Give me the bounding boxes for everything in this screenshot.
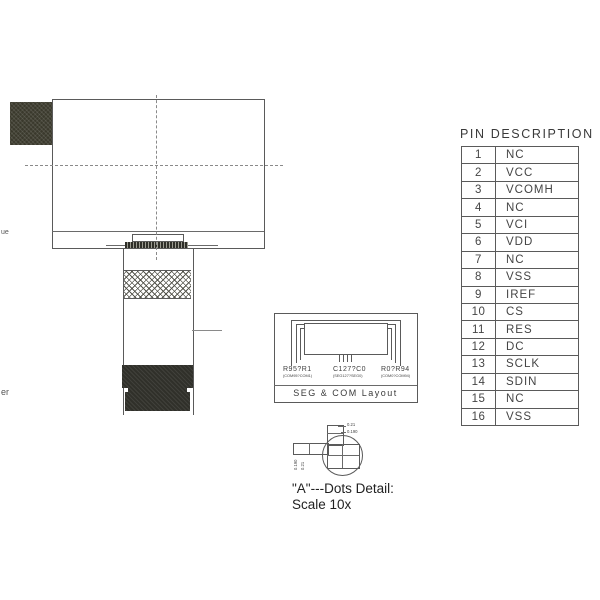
seg-trace-tick <box>339 354 340 362</box>
pin-table-title: PIN DESCRIPTION <box>460 127 594 141</box>
seg-label-right-sub: (COM0?COM94) <box>381 374 410 378</box>
dim-leader-line <box>341 432 346 433</box>
pin-name: VSS <box>496 411 578 423</box>
pin-name: NC <box>496 202 578 214</box>
bottom-slot <box>132 234 184 242</box>
dim-leader-line <box>338 426 346 427</box>
pad-extension-line-right <box>187 245 218 246</box>
vertical-centerline <box>156 95 157 260</box>
pin-number: 6 <box>462 234 496 250</box>
pin-table-row: 6VDD <box>462 234 578 251</box>
pin-number: 13 <box>462 356 496 372</box>
dots-top-column-divider <box>327 433 343 434</box>
pin-table-row: 9IREF <box>462 287 578 304</box>
dots-detail-caption-line1: "A"---Dots Detail: <box>292 481 394 497</box>
left-label-fragment-top: ue <box>1 229 9 236</box>
pin-table-row: 3VCOMH <box>462 182 578 199</box>
pin-number: 8 <box>462 269 496 285</box>
pin-table-row: 4NC <box>462 199 578 216</box>
pin-number: 9 <box>462 287 496 303</box>
seg-label-right: R0?R94 <box>381 366 410 373</box>
pin-name: NC <box>496 393 578 405</box>
pin-name: SCLK <box>496 358 578 370</box>
pin-table-row: 14SDIN <box>462 374 578 391</box>
pin-number: 10 <box>462 304 496 320</box>
flex-end-connector <box>122 365 193 411</box>
pin-number: 16 <box>462 409 496 425</box>
datasheet-drawing-page: ue er R95?R1 (COM95?COM1) C127?C0 (SEG12… <box>0 0 600 600</box>
pin-name: IREF <box>496 289 578 301</box>
seg-label-center: C127?C0 <box>333 366 366 373</box>
pin-number: 12 <box>462 339 496 355</box>
pin-name: VDD <box>496 236 578 248</box>
seg-com-caption-divider <box>274 385 417 386</box>
pin-name: NC <box>496 149 578 161</box>
pin-name: NC <box>496 254 578 266</box>
dots-detail-circle <box>322 435 363 476</box>
pin-name: VCOMH <box>496 184 578 196</box>
dot-pitch-dim: 0.21 <box>347 423 355 427</box>
display-module-outline <box>52 99 265 249</box>
pin-number: 3 <box>462 182 496 198</box>
pin-table-row: 10CS <box>462 304 578 321</box>
seg-trace-tick <box>351 354 352 362</box>
pin-name: SDIN <box>496 376 578 388</box>
dots-detail-caption-line2: Scale 10x <box>292 497 394 513</box>
pin-name: VCC <box>496 167 578 179</box>
display-bottom-edge-line <box>52 231 264 232</box>
seg-label-center-sub: (SEG127?SEG0) <box>333 374 363 378</box>
dots-left-row-divider <box>309 443 310 454</box>
side-connector-block <box>10 102 52 145</box>
pin-table-row: 12DC <box>462 339 578 356</box>
pin-table-row: 7NC <box>462 252 578 269</box>
pin-table-row: 5VCI <box>462 217 578 234</box>
left-label-fragment-bottom: er <box>1 388 9 397</box>
pin-number: 1 <box>462 147 496 163</box>
pin-table-row: 1NC <box>462 147 578 164</box>
pin-name: RES <box>496 324 578 336</box>
dots-detail-caption: "A"---Dots Detail: Scale 10x <box>292 481 394 512</box>
seg-com-ic-rect <box>304 323 388 355</box>
flex-witness-line <box>192 330 222 331</box>
dot-pitch-dim-vertical: 0.21 <box>301 462 305 470</box>
pin-name: CS <box>496 306 578 318</box>
pin-number: 7 <box>462 252 496 268</box>
seg-label-left-sub: (COM95?COM1) <box>283 374 312 378</box>
pin-table-row: 16VSS <box>462 409 578 425</box>
pin-number: 14 <box>462 374 496 390</box>
pin-table-row: 11RES <box>462 321 578 338</box>
pin-table-row: 8VSS <box>462 269 578 286</box>
pin-table: 1NC2VCC3VCOMH4NC5VCI6VDD7NC8VSS9IREF10CS… <box>461 146 579 426</box>
pin-number: 15 <box>462 391 496 407</box>
dot-size-dim-vertical: 0.190 <box>294 459 298 470</box>
seg-trace-tick <box>343 354 344 362</box>
pin-number: 2 <box>462 164 496 180</box>
seg-com-caption: SEG & COM Layout <box>274 388 417 398</box>
pin-table-row: 13SCLK <box>462 356 578 373</box>
seg-label-left: R95?R1 <box>283 366 312 373</box>
pin-name: VCI <box>496 219 578 231</box>
flex-mesh-band <box>124 270 191 299</box>
pin-number: 11 <box>462 321 496 337</box>
pin-table-row: 2VCC <box>462 164 578 181</box>
pin-name: VSS <box>496 271 578 283</box>
pin-table-row: 15NC <box>462 391 578 408</box>
pin-number: 4 <box>462 199 496 215</box>
pin-name: DC <box>496 341 578 353</box>
seg-trace-tick <box>347 354 348 362</box>
pad-extension-line-left <box>106 245 126 246</box>
pin-number: 5 <box>462 217 496 233</box>
horizontal-centerline <box>25 165 283 166</box>
dot-size-dim: 0.190 <box>347 430 358 434</box>
